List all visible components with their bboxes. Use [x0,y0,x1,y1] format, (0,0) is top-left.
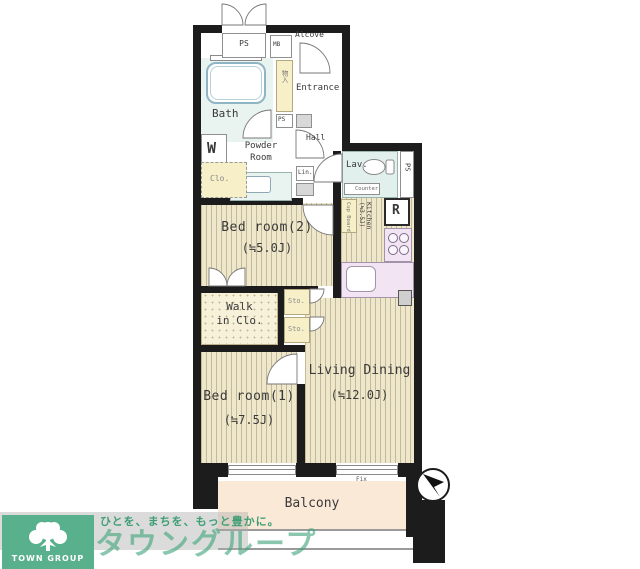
front-door-arc [300,43,330,73]
entry-ps-label: PS [278,117,285,124]
living-dining-label: Living Dining [305,364,414,378]
kitchen-label-group: Kitchen (≒3.5J) [358,202,373,264]
fix-label: Fix [356,477,367,484]
sto-lower-door-arc [310,317,324,331]
ps-door-left-arc [222,4,243,25]
powder-label-1: Powder [227,142,295,152]
washer-label: W [207,140,216,157]
fridge-label: R [392,204,400,218]
hall-label: Hall [306,134,325,143]
kitchen-size-label: (≒3.5J) [358,202,365,264]
living-dining-size: (≒12.0J) [305,389,414,402]
wic-door-right-arc [227,268,245,286]
stove-burners-icon [389,234,409,255]
sto-upper-label: Sto. [288,298,305,306]
alcove-label: Alcove [295,31,324,40]
closet-label: Clo. [210,175,229,184]
entrance-label: Entrance [296,84,339,94]
cupboard-label: Cup Board [345,202,351,232]
bedroom2-size: (≒5.0J) [201,242,333,255]
sto-lower-label: Sto. [288,326,305,334]
bedroom1-size: (≒7.5J) [201,414,297,427]
wic-door-left-arc [209,268,227,286]
logo-brand: タウングループ [95,528,317,561]
compass-icon [417,469,449,501]
wic-label-1: Walk [201,301,278,313]
lav-label: Lav. [346,161,368,171]
town-group-text: TOWN GROUP [2,555,94,564]
shoes-label: 物入 [280,70,287,83]
powder-label-2: Room [227,154,295,164]
bedroom1-door-arc [267,354,297,384]
ps-door-right-arc [245,4,266,25]
mb-label: MB [273,42,280,49]
bath-door-arc [243,110,271,138]
linen-label: Lin. [298,170,312,177]
sto-upper-door-arc [310,289,324,303]
bedroom2-label: Bed room(2) [201,221,333,235]
wic-label-2: in Clo. [201,315,278,327]
bedroom1-label: Bed room(1) [201,390,297,404]
lav-ps-label: PS [403,163,411,171]
ps-top-label: PS [222,40,266,49]
town-group-logo: TOWN GROUP [2,515,94,569]
balcony-label: Balcony [218,497,406,511]
kitchen-label: Kitchen [365,202,373,264]
lav-counter-label: Counter [355,186,378,192]
bath-label: Bath [212,108,239,120]
